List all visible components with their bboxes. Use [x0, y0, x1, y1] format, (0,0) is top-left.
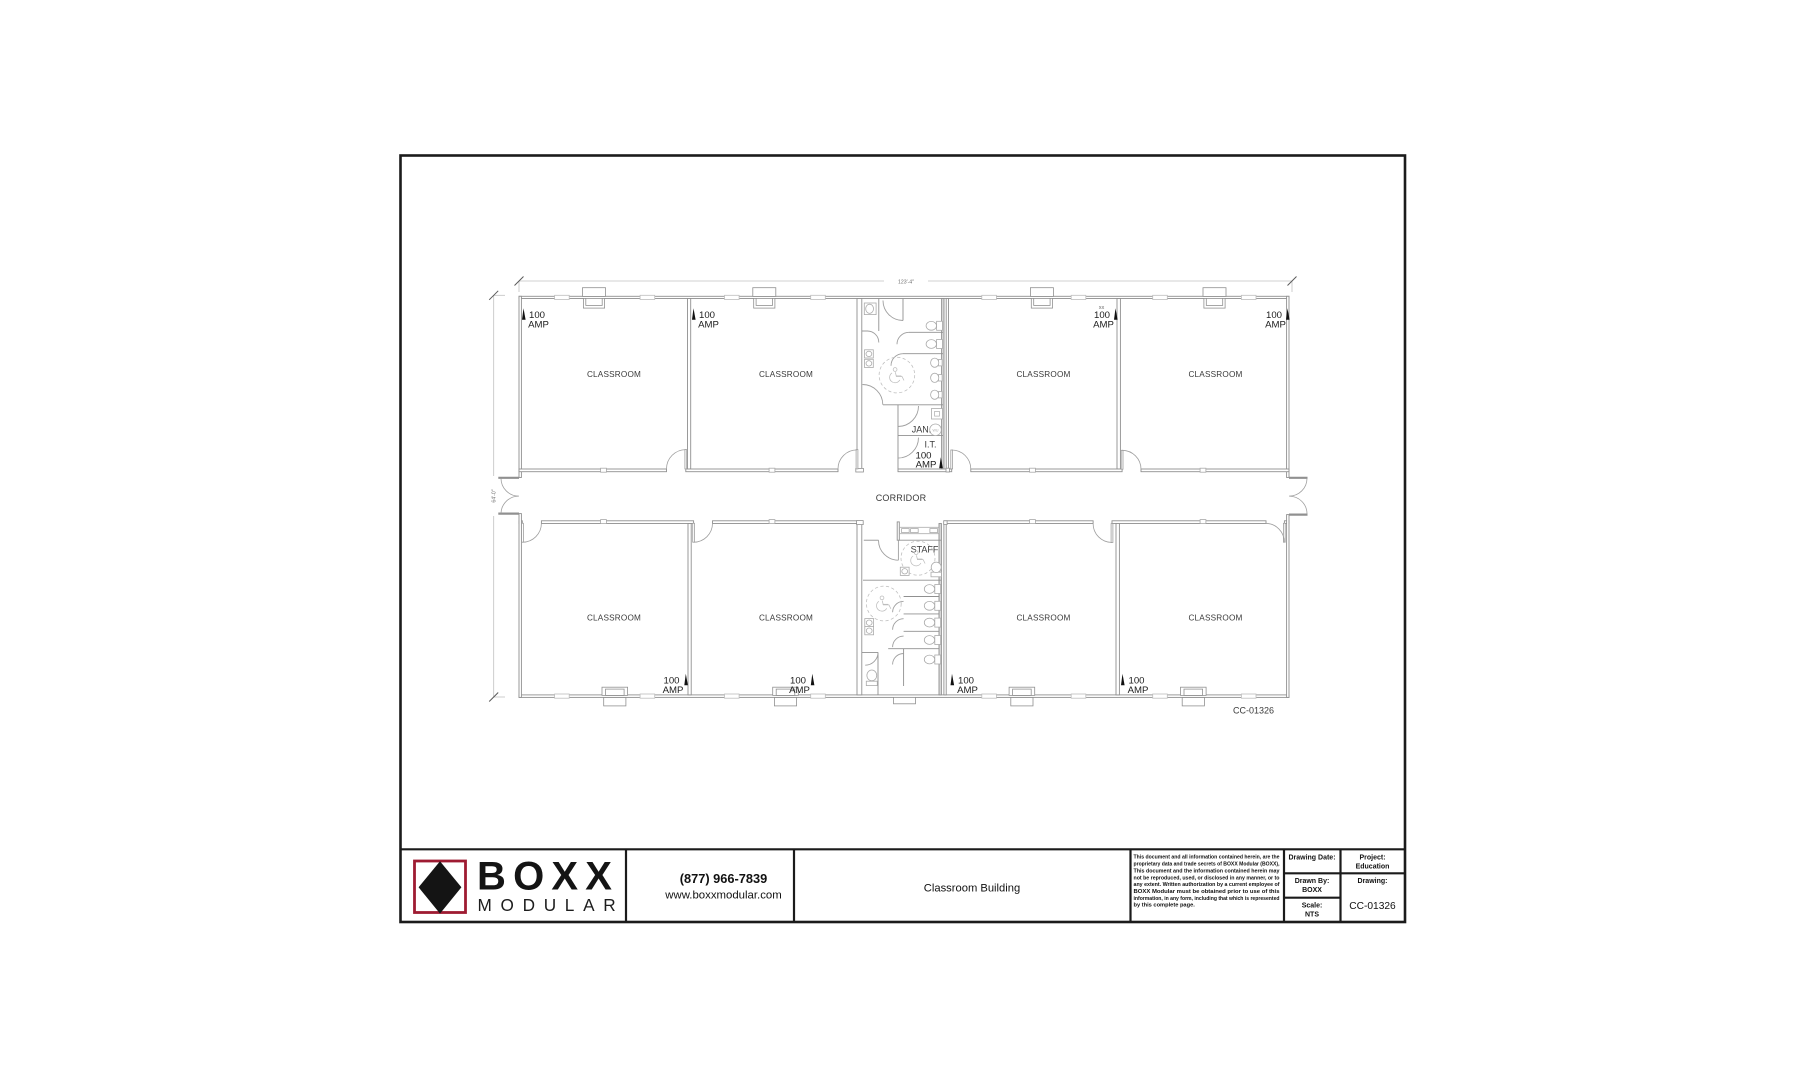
svg-text:64′-0″: 64′-0″: [492, 489, 498, 502]
svg-text:CLASSROOM: CLASSROOM: [759, 370, 813, 379]
svg-text:information, in any form, incl: information, in any form, including that…: [1134, 896, 1280, 902]
svg-text:AMP: AMP: [916, 459, 937, 470]
svg-text:CLASSROOM: CLASSROOM: [1016, 614, 1070, 623]
svg-text:123′-4″: 123′-4″: [898, 280, 914, 286]
svg-text:AMP: AMP: [528, 319, 549, 330]
svg-text:BOXX Modular must be obtained: BOXX Modular must be obtained prior to u…: [1134, 889, 1280, 895]
svg-text:This document and the informat: This document and the information contai…: [1134, 868, 1281, 874]
svg-text:CLASSROOM: CLASSROOM: [587, 614, 641, 623]
svg-text:This document and all informat: This document and all information contai…: [1134, 855, 1280, 861]
svg-text:AMP: AMP: [1128, 685, 1149, 696]
svg-text:CLASSROOM: CLASSROOM: [1188, 370, 1242, 379]
svg-text:CC-01326: CC-01326: [1233, 706, 1274, 716]
svg-text:Drawing Date:: Drawing Date:: [1288, 855, 1335, 862]
svg-text:Project:: Project:: [1359, 855, 1385, 862]
svg-text:Scale:: Scale:: [1302, 903, 1323, 910]
svg-text:JAN.: JAN.: [912, 425, 932, 435]
svg-text:Education: Education: [1356, 864, 1390, 871]
svg-text:AMP: AMP: [957, 685, 978, 696]
svg-text:(877) 966-7839: (877) 966-7839: [680, 871, 768, 886]
svg-text:XX: XX: [1099, 305, 1105, 310]
svg-text:CLASSROOM: CLASSROOM: [759, 614, 813, 623]
svg-text:WU: WU: [933, 428, 939, 432]
svg-text:not be reproduced, used, or di: not be reproduced, used, or disclosed in…: [1134, 875, 1280, 881]
svg-text:CLASSROOM: CLASSROOM: [1188, 614, 1242, 623]
svg-text:NTS: NTS: [1305, 912, 1319, 919]
svg-text:AMP: AMP: [1093, 319, 1114, 330]
svg-text:AMP: AMP: [789, 685, 810, 696]
svg-text:Classroom Building: Classroom Building: [924, 883, 1020, 895]
svg-text:CLASSROOM: CLASSROOM: [1016, 370, 1070, 379]
svg-text:BOXX: BOXX: [1302, 887, 1322, 894]
svg-text:AMP: AMP: [1265, 319, 1286, 330]
svg-text:MODULAR: MODULAR: [478, 895, 625, 915]
svg-text:CORRIDOR: CORRIDOR: [876, 493, 927, 503]
svg-text:www.boxxmodular.com: www.boxxmodular.com: [664, 890, 781, 902]
svg-text:any extent. Written authoriza: any extent. Written authorization by a c…: [1134, 882, 1280, 888]
svg-text:CC-01326: CC-01326: [1349, 901, 1396, 912]
svg-text:Drawing:: Drawing:: [1358, 878, 1388, 885]
svg-text:proprietary data and trade sec: proprietary data and trade secrets of BO…: [1134, 862, 1280, 868]
svg-text:AMP: AMP: [663, 685, 684, 696]
svg-text:Drawn By:: Drawn By:: [1295, 878, 1330, 885]
svg-text:by this complete page.: by this complete page.: [1134, 903, 1196, 909]
svg-text:BOXX: BOXX: [477, 854, 619, 898]
svg-text:CLASSROOM: CLASSROOM: [587, 370, 641, 379]
svg-text:I.T.: I.T.: [924, 440, 936, 450]
svg-text:AMP: AMP: [698, 319, 719, 330]
svg-text:STAFF: STAFF: [911, 544, 939, 554]
